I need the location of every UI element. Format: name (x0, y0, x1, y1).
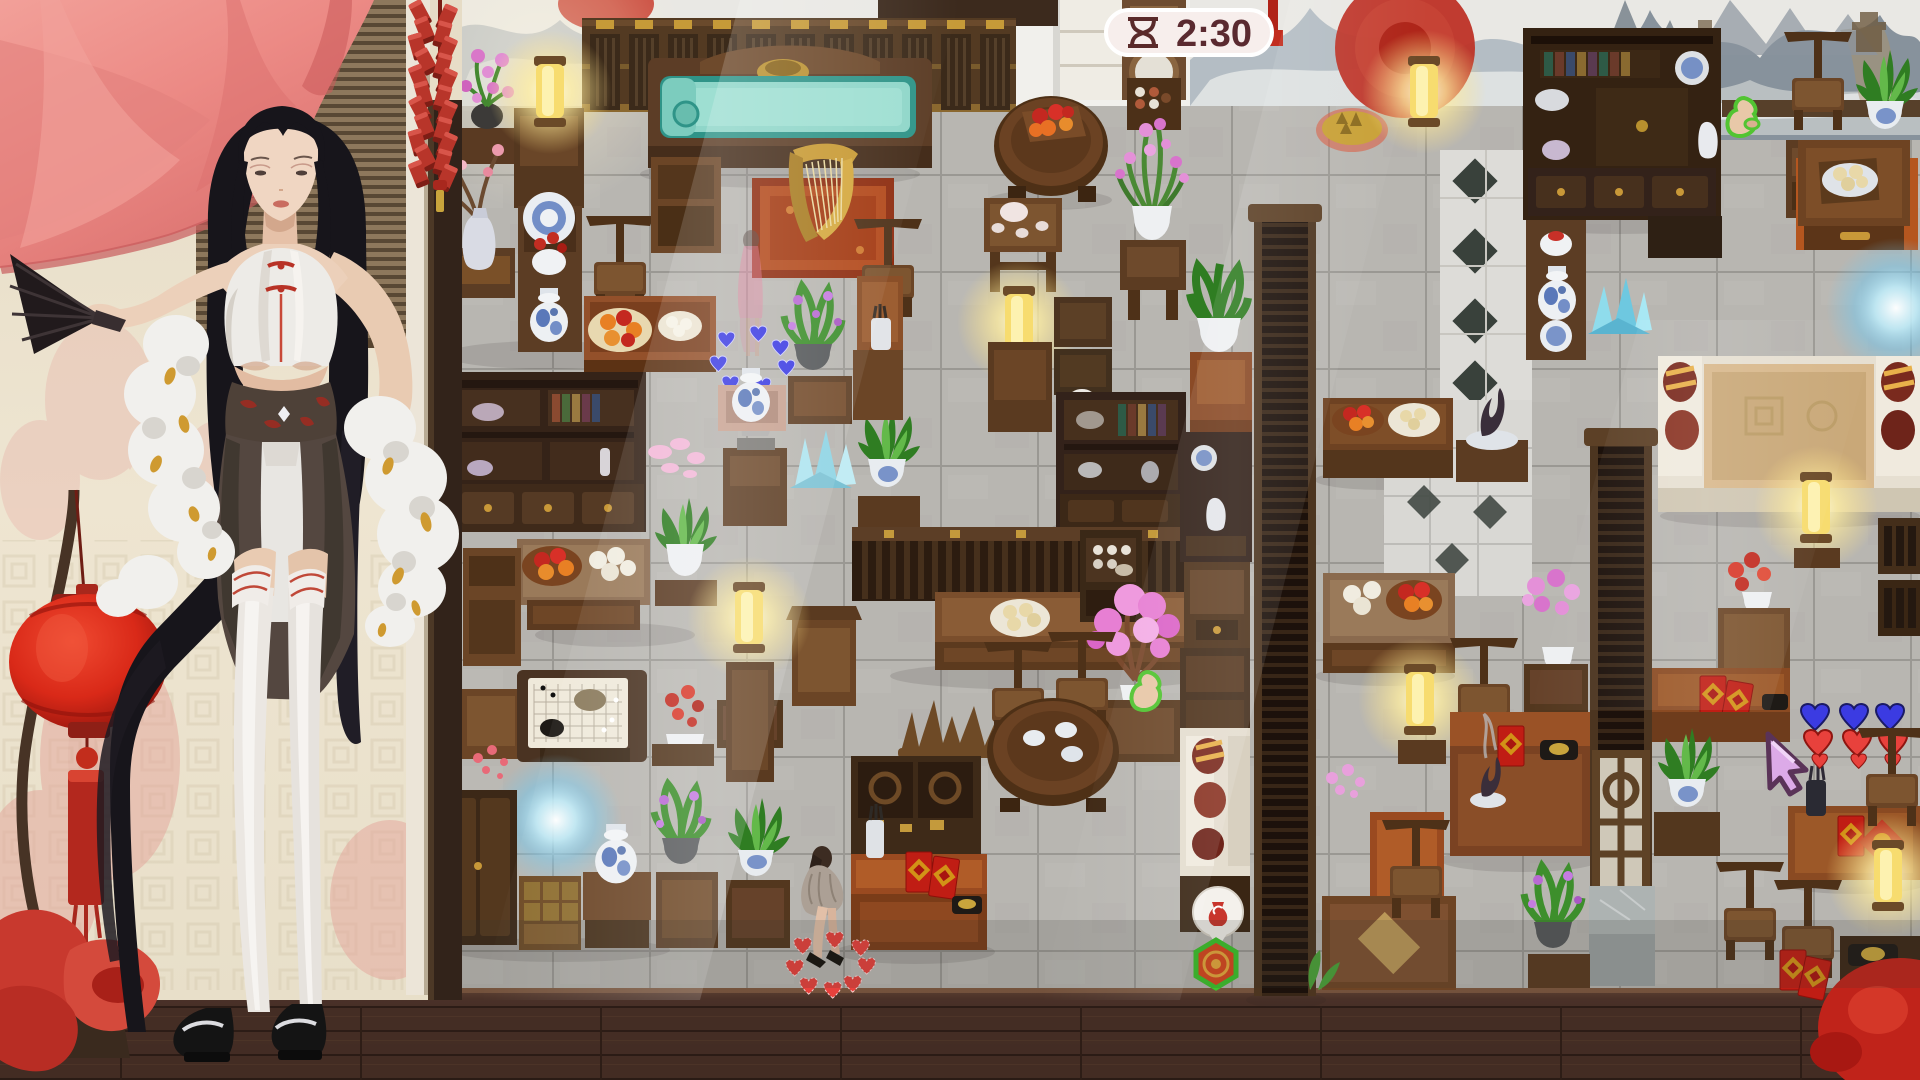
svg-text:2:30: 2:30 (1176, 13, 1252, 55)
